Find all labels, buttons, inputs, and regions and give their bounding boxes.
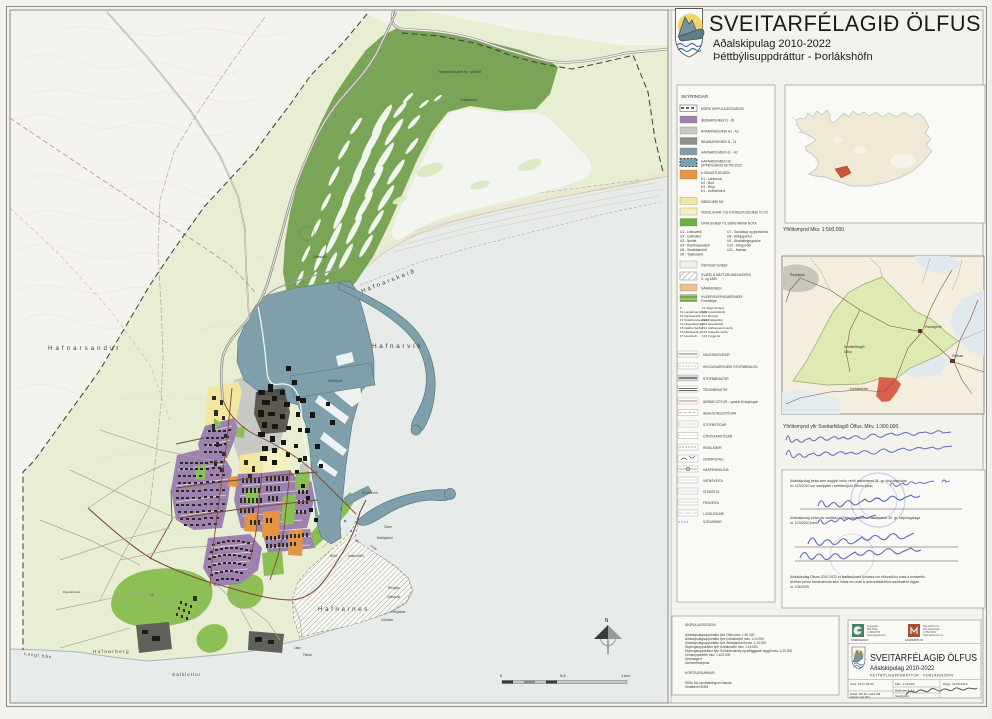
svg-text:U7 - Sundlaug og íþróttahús: U7 - Sundlaug og íþróttahús xyxy=(727,230,769,234)
svg-text:MIÐSVÆÐI M1: MIÐSVÆÐI M1 xyxy=(701,200,724,204)
svg-text:Hafnarnes: Hafnarnes xyxy=(318,606,370,613)
svg-text:HITAVEITA: HITAVEITA xyxy=(703,490,720,494)
svg-text:ÞJÓNUSTUSVÆÐI: ÞJÓNUSTUSVÆÐI xyxy=(701,170,730,175)
svg-text:Fornminjar: Fornminjar xyxy=(701,299,718,303)
svg-text:Dags: 13.05.2013: Dags: 13.05.2013 xyxy=(943,682,968,686)
svg-text:IÐNAÐARSVÆÐI Í1 - Í4: IÐNAÐARSVÆÐI Í1 - Í4 xyxy=(701,140,736,144)
svg-text:ÍBÚÐARSVÆÐI Í1 - Í8: ÍBÚÐARSVÆÐI Í1 - Í8 xyxy=(701,119,734,123)
svg-text:AÐALGÖNGUSTÍGAR: AÐALGÖNGUSTÍGAR xyxy=(703,412,737,416)
svg-text:Aðalskipulag 2010-2022: Aðalskipulag 2010-2022 xyxy=(870,665,935,672)
svg-text:Yfirlitsmynd Mkv. 1:500.000.: Yfirlitsmynd Mkv. 1:500.000. xyxy=(783,227,845,233)
svg-text:Mkv: 1:15.000: Mkv: 1:15.000 xyxy=(895,682,915,686)
svg-text:Þ4 - Þráðarhorni: Þ4 - Þráðarhorni xyxy=(701,188,725,193)
svg-text:KORTAGRUNNUR: KORTAGRUNNUR xyxy=(685,671,715,675)
svg-text:0,5: 0,5 xyxy=(560,673,566,678)
svg-text:Hafnarvík: Hafnarvík xyxy=(372,343,423,350)
svg-text:Golfvöllur: Golfvöllur xyxy=(313,255,328,259)
svg-text:Sveitarfélagið: Sveitarfélagið xyxy=(844,344,865,349)
svg-text:Ló: Ló xyxy=(150,593,154,597)
svg-text:ÚTIVISTARSTÍGAR: ÚTIVISTARSTÍGAR xyxy=(703,435,733,439)
svg-text:U4 - Reiðhúsasvæði: U4 - Reiðhúsasvæði xyxy=(680,243,710,248)
svg-text:LJÓSLEIÐARI: LJÓSLEIÐARI xyxy=(703,511,724,516)
svg-text:SKÝRINGAR: SKÝRINGAR xyxy=(681,93,709,99)
svg-text:Blekkjarból: Blekkjarból xyxy=(377,536,393,540)
svg-text:MÖRK SKIPULAGSSVÆÐIS: MÖRK SKIPULAGSSVÆÐIS xyxy=(701,107,744,111)
svg-text:Flesjasker: Flesjasker xyxy=(391,610,406,614)
svg-text:ATHAFNASVÆÐI A1 - A2: ATHAFNASVÆÐI A1 - A2 xyxy=(701,130,739,134)
svg-text:U9 - Áhaldsleigugarður: U9 - Áhaldsleigugarður xyxy=(727,238,762,243)
svg-text:LANDMÓTUN: LANDMÓTUN xyxy=(905,637,923,642)
svg-text:Suðurvör: Suðurvör xyxy=(362,490,379,495)
svg-text:Renglás: Renglás xyxy=(388,586,400,590)
svg-text:STOFNSTÍGAR: STOFNSTÍGAR xyxy=(703,423,727,427)
svg-text:www.landmotun.is: www.landmotun.is xyxy=(923,634,944,637)
svg-text:N: N xyxy=(605,618,609,624)
svg-text:Uðarfam: Uðarfam xyxy=(381,617,394,622)
svg-text:Hafnarsandur: Hafnarsandur xyxy=(48,345,122,352)
svg-text:Hafnarberg: Hafnarberg xyxy=(93,649,130,654)
svg-text:U6 - Tjaldsvæði: U6 - Tjaldsvæði xyxy=(680,252,703,257)
svg-text:U1 - Leiksvæði: U1 - Leiksvæði xyxy=(680,229,702,234)
svg-text:Börði: Börði xyxy=(330,553,338,558)
svg-text:NÁMASVÆÐI: NÁMASVÆÐI xyxy=(701,287,722,291)
svg-text:SVEITARFÉLAGIÐ ÖLFUS: SVEITARFÉLAGIÐ ÖLFUS xyxy=(870,653,977,664)
svg-text:Hnitakerfi ISN93: Hnitakerfi ISN93 xyxy=(685,685,708,689)
svg-text:FRÁVEITA: FRÁVEITA xyxy=(703,501,720,505)
svg-text:ÓBYGGÐ SVÆÐI: ÓBYGGÐ SVÆÐI xyxy=(701,263,727,268)
svg-text:Selfoss: Selfoss xyxy=(952,354,963,358)
svg-text:Þ7 Heurfandi: Þ7 Heurfandi xyxy=(680,334,697,338)
svg-text:Ölfus: Ölfus xyxy=(844,350,852,354)
svg-text:Fuglavarða: Fuglavarða xyxy=(460,97,477,102)
svg-text:Látur: Látur xyxy=(294,646,302,650)
svg-text:Aðalskipulag 2010-2022: Aðalskipulag 2010-2022 xyxy=(713,38,831,50)
svg-text:SVEITARFÉLAGIÐ ÖLFUS: SVEITARFÉLAGIÐ ÖLFUS xyxy=(709,11,981,36)
svg-text:Þ16 Þyrgja fæ: Þ16 Þyrgja fæ xyxy=(702,334,721,338)
svg-text:nr. 123/2010 þann: nr. 123/2010 þann xyxy=(790,521,818,525)
svg-text:U5 - Smábátavörð: U5 - Smábátavörð xyxy=(680,247,707,252)
svg-text:Framtíðarsvæði fyr. golfvöll: Framtíðarsvæði fyr. golfvöll xyxy=(438,69,481,74)
svg-text:Imabohöfði: Imabohöfði xyxy=(348,553,364,558)
svg-text:U11 - Náman: U11 - Náman xyxy=(727,248,747,252)
svg-text:Skötubót: Skötubót xyxy=(328,379,342,383)
svg-text:nr. 106/2005.: nr. 106/2005. xyxy=(790,585,810,589)
svg-text:Þorlákshöfn: Þorlákshöfn xyxy=(850,387,868,391)
svg-text:Reykjavík: Reykjavík xyxy=(790,273,805,277)
svg-text:1 km: 1 km xyxy=(621,673,630,678)
svg-text:ÞÉTTBÝLISUPPDRÁTTUR - ÞORLÁKSH: ÞÉTTBÝLISUPPDRÁTTUR - ÞORLÁKSHÖFN xyxy=(870,673,953,678)
svg-text:x x x x: x x x x xyxy=(678,520,688,524)
svg-text:U8 - Kirkjugarður: U8 - Kirkjugarður xyxy=(727,234,753,239)
svg-text:U2 - Golfvöllur: U2 - Golfvöllur xyxy=(680,235,702,239)
svg-text:Aðalskipulag þetta sem auglýst: Aðalskipulag þetta sem auglýst hefur ver… xyxy=(790,478,907,483)
svg-text:AÐRAR GÖTUR - sýndar til skýri: AÐRAR GÖTUR - sýndar til skýringar xyxy=(703,400,759,404)
svg-text:STOFNBRAUTIR: STOFNBRAUTIR xyxy=(703,377,729,381)
svg-text:Hveragerði: Hveragerði xyxy=(925,324,942,329)
svg-text:Þéttbýlisuppdráttur - Þorláksh: Þéttbýlisuppdráttur - Þorlákshöfn xyxy=(713,51,873,63)
svg-text:Yfirlitsmynd yfir Sveitarfélag: Yfirlitsmynd yfir Sveitarfélagið Ölfus. … xyxy=(783,423,900,430)
svg-text:U10 - Hörguvöllr: U10 - Hörguvöllr xyxy=(727,244,752,248)
svg-text:U3 - Íþróttir: U3 - Íþróttir xyxy=(680,239,697,243)
svg-text:Verk: 0717-04-03: Verk: 0717-04-03 xyxy=(850,682,874,686)
svg-text:www.steinsholt.is: www.steinsholt.is xyxy=(867,634,887,637)
svg-text:S. og 1890: S. og 1890 xyxy=(701,277,717,281)
svg-text:VATNSVEITA: VATNSVEITA xyxy=(703,479,724,483)
svg-text:Umhverfisskýrsla: Umhverfisskýrsla xyxy=(685,661,709,665)
svg-text:VERSLUNAR- OG ÞJÓNUSTUSVÆÐI V1: VERSLUNAR- OG ÞJÓNUSTUSVÆÐI V1-V2 xyxy=(701,210,768,215)
svg-text:UNDIRGÖNG: UNDIRGÖNG xyxy=(703,458,724,462)
svg-text:Flekar: Flekar xyxy=(303,653,313,657)
svg-text:Viðbukrki: Viðbukrki xyxy=(387,594,400,599)
svg-text:REIÐLEIÐIR: REIÐLEIÐIR xyxy=(703,446,722,450)
svg-text:HAFNARSVÆÐI H1 - H2: HAFNARSVÆÐI H1 - H2 xyxy=(701,151,738,155)
svg-text:SKIPULAGSGÖGN: SKIPULAGSGÖGN xyxy=(685,623,716,627)
svg-text:Ölver: Ölver xyxy=(384,525,393,529)
svg-text:UPPBYGGING EFTIR 2022: UPPBYGGING EFTIR 2022 xyxy=(701,164,742,168)
svg-text:Djúpalónsvík: Djúpalónsvík xyxy=(63,590,81,594)
svg-text:Gatklettur: Gatklettur xyxy=(172,672,201,677)
svg-text:Aðalskipulag Ölfuss 2010-2022: Aðalskipulag Ölfuss 2010-2022 er staðfes… xyxy=(790,574,926,579)
svg-text:HÁSPENNULÍNA: HÁSPENNULÍNA xyxy=(703,468,729,472)
svg-text:nr. 123/2010 var samþykkt í sv: nr. 123/2010 var samþykkt í sveitarstjór… xyxy=(790,484,873,488)
svg-text:HÁLENDISVEGIR: HÁLENDISVEGIR xyxy=(703,353,730,357)
svg-text:STEINSHOLT: STEINSHOLT xyxy=(851,638,869,642)
svg-text:SJÓVARNIR: SJÓVARNIR xyxy=(703,519,722,524)
svg-text:OPIN SVÆÐI TIL SÉRSTAKRA NOTA: OPIN SVÆÐI TIL SÉRSTAKRA NOTA xyxy=(701,221,758,226)
svg-text:áhrifum þeirra framkvæmda sem: áhrifum þeirra framkvæmda sem háðar eru … xyxy=(790,579,919,584)
svg-text:TENGIBRAUTIR: TENGIBRAUTIR xyxy=(703,388,728,392)
svg-text:HELGUNARSVÆÐI STOFNBRAUTA: HELGUNARSVÆÐI STOFNBRAUTA xyxy=(703,365,758,369)
